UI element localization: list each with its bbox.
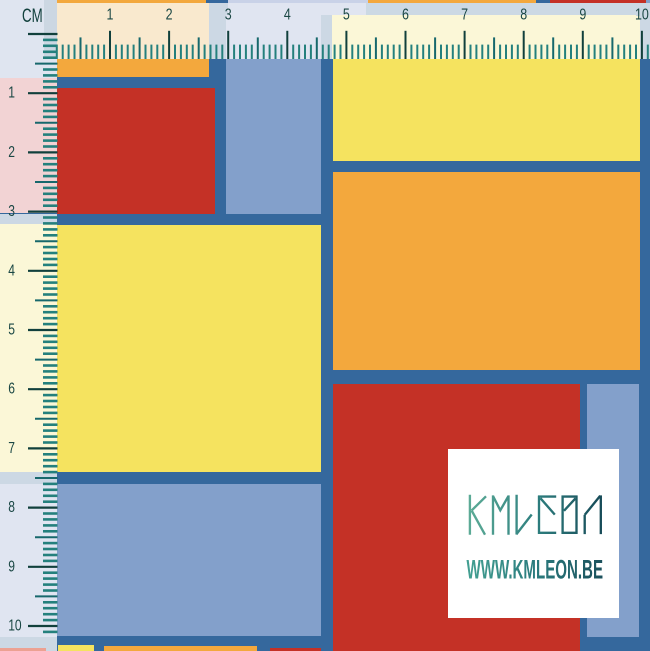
svg-text:8: 8 bbox=[8, 498, 15, 516]
svg-text:CM: CM bbox=[22, 6, 43, 27]
svg-text:9: 9 bbox=[579, 6, 586, 24]
svg-text:2: 2 bbox=[166, 6, 173, 24]
svg-text:6: 6 bbox=[402, 6, 409, 24]
svg-text:5: 5 bbox=[8, 320, 15, 338]
svg-text:2: 2 bbox=[8, 142, 15, 160]
svg-text:6: 6 bbox=[8, 379, 15, 397]
svg-text:10: 10 bbox=[635, 6, 649, 24]
svg-text:7: 7 bbox=[8, 438, 15, 456]
svg-text:WWW.KMLEON.BE: WWW.KMLEON.BE bbox=[467, 555, 604, 585]
svg-text:10: 10 bbox=[8, 616, 22, 634]
svg-text:1: 1 bbox=[8, 83, 15, 101]
svg-text:3: 3 bbox=[8, 202, 15, 220]
svg-text:4: 4 bbox=[284, 6, 291, 24]
svg-text:4: 4 bbox=[8, 261, 15, 279]
svg-text:1: 1 bbox=[107, 6, 114, 24]
svg-text:8: 8 bbox=[520, 6, 527, 24]
svg-text:9: 9 bbox=[8, 557, 15, 575]
svg-text:7: 7 bbox=[461, 6, 468, 24]
svg-text:3: 3 bbox=[225, 6, 232, 24]
svg-text:5: 5 bbox=[343, 6, 350, 24]
